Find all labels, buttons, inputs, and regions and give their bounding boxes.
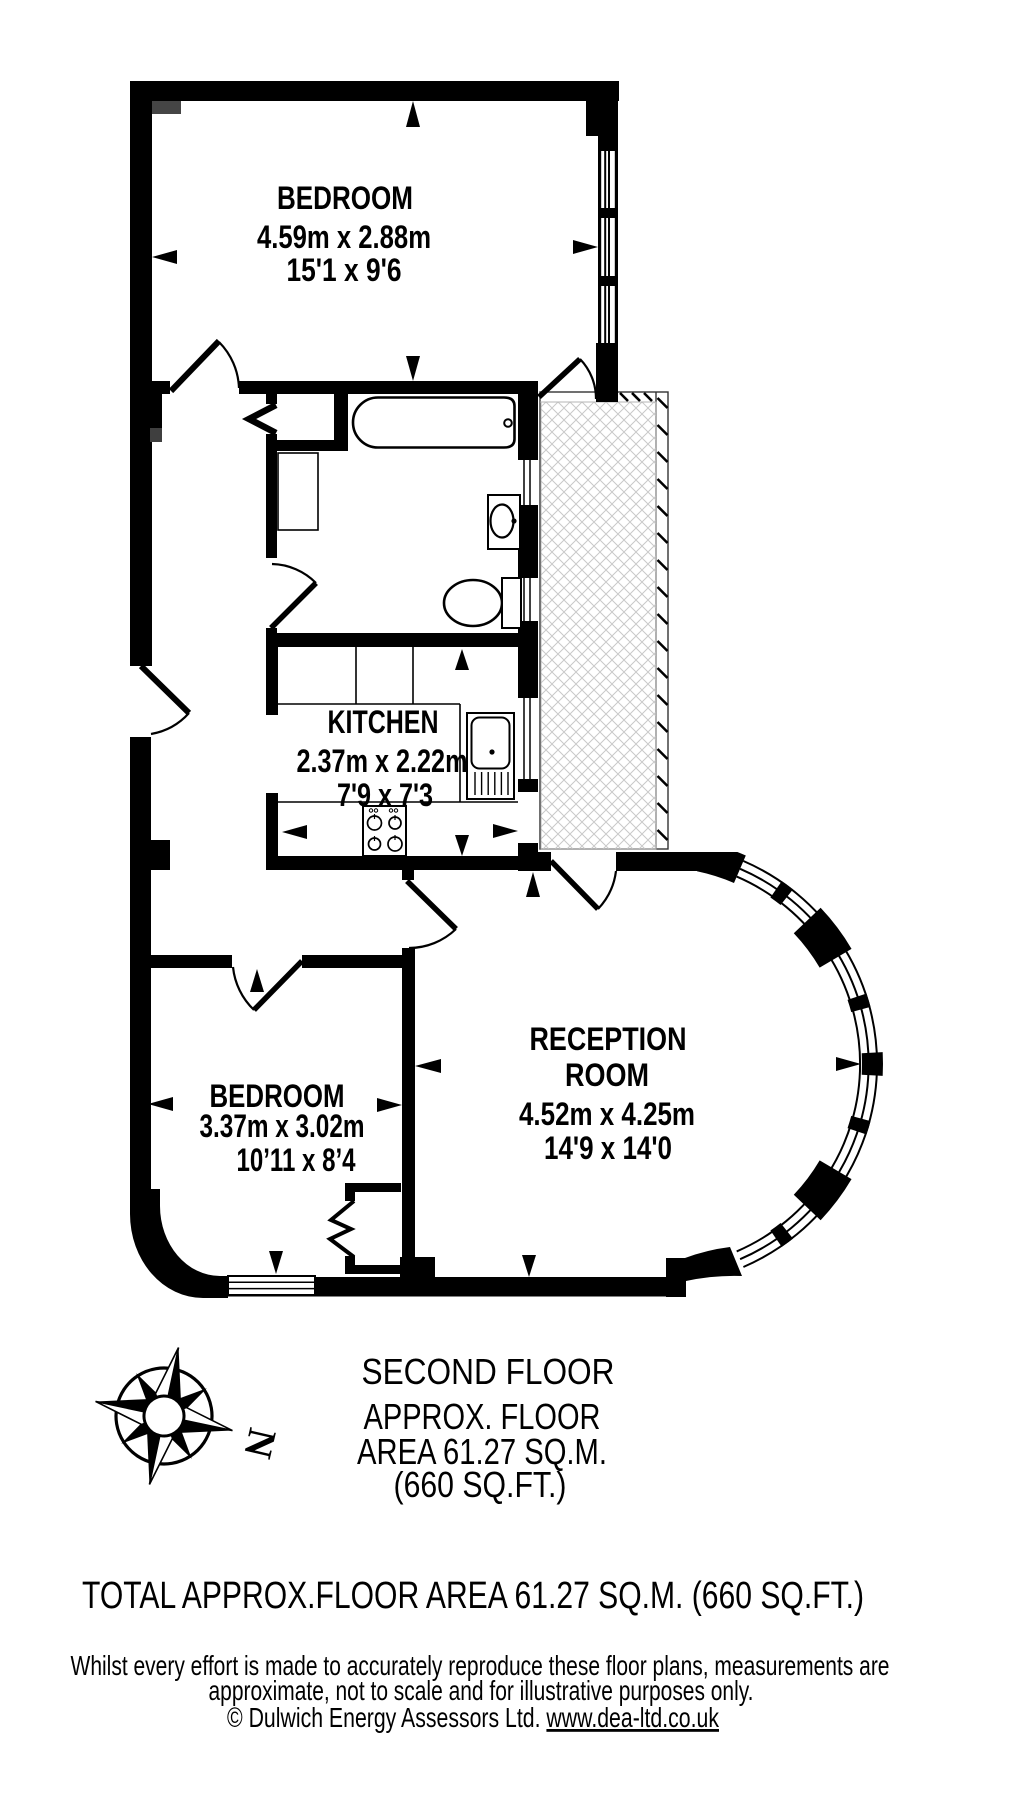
svg-text:KITCHEN: KITCHEN bbox=[328, 704, 439, 740]
svg-text:4.52m x 4.25m: 4.52m x 4.25m bbox=[519, 1096, 695, 1132]
svg-text:3.37m x 3.02m: 3.37m x 3.02m bbox=[200, 1108, 365, 1144]
svg-text:15'1 x 9'6: 15'1 x 9'6 bbox=[287, 252, 402, 288]
svg-text:BEDROOM: BEDROOM bbox=[277, 180, 413, 216]
svg-text:TOTAL APPROX.FLOOR AREA 61.27: TOTAL APPROX.FLOOR AREA 61.27 SQ.M. (660… bbox=[82, 1575, 864, 1617]
svg-text:SECOND FLOOR: SECOND FLOOR bbox=[362, 1351, 615, 1392]
svg-text:RECEPTION: RECEPTION bbox=[530, 1021, 687, 1057]
svg-text:2.37m x 2.22m: 2.37m x 2.22m bbox=[297, 743, 468, 779]
svg-text:© Dulwich Energy Assessors Ltd: © Dulwich Energy Assessors Ltd. www.dea-… bbox=[227, 1702, 720, 1733]
svg-text:7'9 x 7'3: 7'9 x 7'3 bbox=[337, 777, 433, 813]
svg-text:(660 SQ.FT.): (660 SQ.FT.) bbox=[394, 1464, 567, 1505]
svg-text:10’11 x 8’4: 10’11 x 8’4 bbox=[237, 1142, 356, 1178]
svg-text:14'9 x 14'0: 14'9 x 14'0 bbox=[544, 1130, 672, 1166]
svg-text:4.59m x 2.88m: 4.59m x 2.88m bbox=[257, 219, 431, 255]
svg-text:ROOM: ROOM bbox=[565, 1057, 649, 1093]
